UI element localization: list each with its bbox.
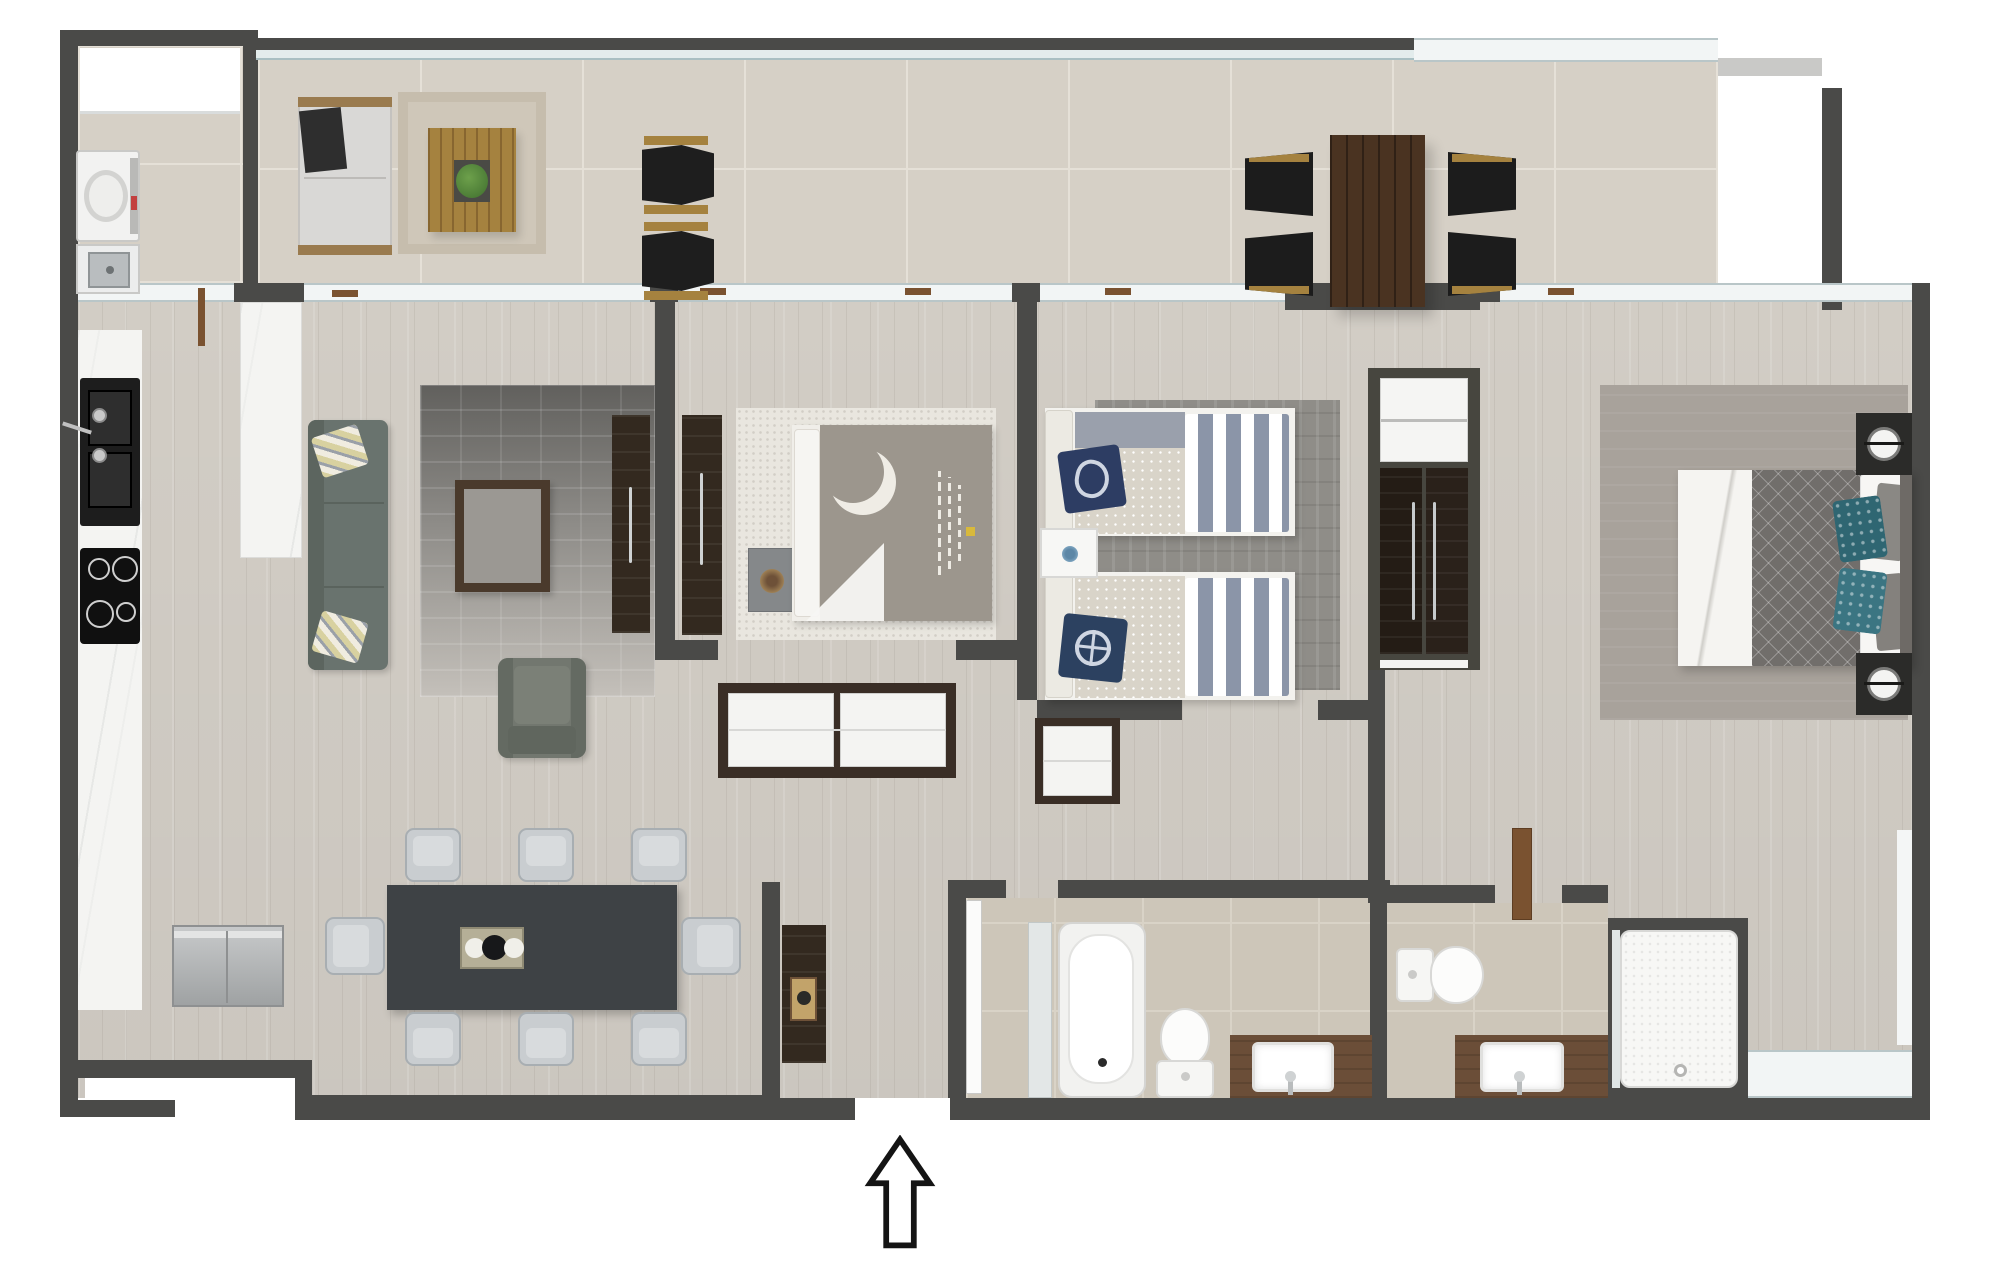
door-frame-mark-3 (905, 288, 931, 295)
door-frame-mark-5 (1548, 288, 1574, 295)
twin-bed-2-navy-pillow (1058, 613, 1128, 683)
toilet-1-button (1181, 1072, 1190, 1081)
wall-closet-spine (1368, 670, 1385, 903)
outdoor-sofa (298, 103, 392, 249)
closet-shelf-divider (1381, 419, 1467, 422)
door-frame-mark-1 (332, 290, 358, 297)
window-pier-island (234, 283, 304, 302)
outdoor-coffee-table (428, 128, 516, 232)
centerpiece-bowl-3 (504, 938, 524, 958)
master-bed-white-blanket (1678, 470, 1758, 666)
bathroom2-door-leaf (1512, 828, 1532, 920)
refrigerator (172, 925, 284, 1007)
laundry-sink (76, 244, 140, 294)
washer-indicator (131, 196, 137, 210)
bathtub-drain (1098, 1058, 1107, 1067)
bedroom1-dresser (718, 683, 956, 778)
shower-tray (1620, 930, 1738, 1088)
twin-bed-2 (1045, 572, 1295, 700)
shower-drain (1674, 1064, 1687, 1077)
sofa-cushion-line-1 (324, 502, 384, 504)
armchair-seat (514, 666, 570, 724)
wall-entry-bottom-left (762, 1098, 855, 1120)
outdoor-sofa-wood-bottom (298, 245, 392, 255)
dresser-drawer-line (728, 729, 946, 731)
vanity-2 (1455, 1035, 1608, 1098)
dining-chair-8 (681, 917, 741, 975)
burner-1 (88, 558, 110, 580)
tv-cabinet-handle (629, 487, 632, 563)
outdoor-chair-2 (1245, 232, 1313, 296)
twin-bed-2-stripes (1185, 578, 1289, 696)
outdoor-sofa-seat-line (304, 177, 386, 179)
toilet-2-bowl (1430, 946, 1484, 1004)
centerpiece-tray (460, 927, 524, 969)
entry-console-tray (790, 977, 817, 1021)
laundry-door-frame (198, 288, 205, 346)
wall-dining-bottom (295, 1095, 762, 1120)
tv-cabinet (612, 415, 650, 633)
sofa-cushion-line-2 (324, 586, 384, 588)
entry-arrow (862, 1135, 938, 1250)
master-bed (1678, 470, 1912, 666)
laundry-window (80, 48, 240, 114)
toilet-2 (1396, 946, 1484, 1004)
duvet-text-line-1 (938, 471, 941, 575)
master-teal-pillow-1 (1832, 495, 1888, 563)
wall-entry-left (762, 882, 780, 1098)
twin-bed-1-stripes (1185, 414, 1289, 532)
floor-plan-canvas (0, 0, 2016, 1269)
terrace-right-window (1414, 38, 1718, 62)
lounge-chair-1-wood-bottom (644, 205, 708, 214)
wall-bath1-top-b (1058, 880, 1390, 898)
toilet-2-button (1408, 970, 1417, 979)
master-lamp-top-arm (1864, 442, 1904, 445)
hall-cabinet-line (1043, 760, 1112, 762)
burner-3 (86, 600, 114, 628)
refrigerator-handle-strip (174, 931, 282, 938)
dining-chair-7 (325, 917, 385, 975)
wall-laundry-right (243, 46, 258, 302)
entry-console (782, 925, 826, 1063)
master-headboard (1900, 464, 1912, 670)
bedroom1-nightstand-tray (760, 569, 784, 593)
terrace-glass-rail (256, 50, 1414, 60)
master-lamp-bottom-arm (1864, 682, 1904, 685)
kitchen-sink (80, 378, 140, 526)
vanity-2-faucet-base (1514, 1071, 1525, 1082)
wall-bottom-right (950, 1098, 1912, 1120)
hall-cabinet (1035, 718, 1120, 804)
duvet-crown-mark (966, 527, 975, 536)
master-teal-pillow-2 (1832, 567, 1887, 634)
toilet-1-bowl (1160, 1008, 1210, 1066)
bedroom1-nightstand (748, 548, 794, 612)
right-wall-window (1897, 830, 1912, 1045)
wall-bath-divider (1370, 898, 1387, 1100)
bathroom1-door-leaf (966, 900, 982, 1094)
knot-motif (1071, 457, 1112, 501)
wall-kitchen-bottom (78, 1060, 300, 1078)
moon-crescent-inner (822, 441, 884, 503)
armchair-back (508, 726, 576, 754)
bedroom1-moon-duvet (820, 425, 992, 621)
toilet-1 (1156, 1008, 1214, 1100)
wall-bath1-top-a (948, 880, 1006, 898)
outdoor-sofa-wood-top (298, 97, 392, 107)
door-frame-mark-4 (1105, 288, 1131, 295)
lounge-chair-2-body (642, 231, 714, 291)
closet-door-right (1426, 468, 1468, 654)
sofa (308, 420, 388, 670)
bedroom1-pillow (794, 429, 820, 617)
master-nightstand-bottom (1856, 653, 1912, 715)
closet-door-left (1380, 468, 1422, 654)
armchair (498, 658, 586, 758)
closet-shelf-top (1380, 378, 1468, 462)
washing-machine (76, 150, 140, 242)
closet-block (1368, 368, 1480, 670)
vanity-1-faucet-base (1285, 1071, 1296, 1082)
dining-chair-1 (405, 828, 461, 882)
outdoor-chair-1 (1245, 152, 1313, 216)
duvet-text-line-3 (958, 485, 961, 561)
lounge-chair-2-wood-top (644, 222, 708, 231)
closet-door-right-handle (1433, 502, 1436, 620)
vanity-1-sink (1252, 1042, 1334, 1092)
lounge-chair-1-body (642, 145, 714, 205)
twin-nightstand-cup (1062, 546, 1078, 562)
wall-top-right (1822, 88, 1842, 310)
dining-chair-2 (518, 828, 574, 882)
planter-plant (456, 164, 488, 198)
lounge-chair-2 (640, 222, 716, 300)
dining-chair-3 (631, 828, 687, 882)
wall-living-bed1 (655, 302, 675, 660)
closet-door-left-handle (1412, 502, 1415, 620)
dining-table (387, 885, 677, 1010)
duvet-text-line-2 (948, 477, 951, 569)
burner-4 (116, 602, 136, 622)
bathtub (1058, 922, 1146, 1098)
terrace-right-sill (1718, 58, 1822, 76)
bedroom1-bed (792, 425, 992, 621)
vanity-2-sink (1480, 1042, 1564, 1092)
bedroom1-wardrobe (682, 415, 722, 635)
entry-console-decor (797, 991, 811, 1005)
wall-terrace-top (256, 38, 1414, 50)
laundry-sink-drain (106, 266, 114, 274)
dining-chair-4 (405, 1012, 461, 1066)
closet-shelf-bottom (1380, 660, 1468, 668)
shower-glass (1612, 930, 1620, 1088)
twin-nightstand (1040, 528, 1098, 578)
lounge-chair-2-wood-bottom (644, 291, 708, 300)
coffee-table (455, 480, 550, 592)
wall-laundry-top (60, 30, 258, 46)
outdoor-sofa-dark-cushion (299, 107, 347, 173)
refrigerator-door-divider (226, 931, 228, 1003)
outdoor-chair-4 (1448, 232, 1516, 296)
wall-bath2-top-b (1562, 885, 1608, 903)
wall-bed1-bottom-a (655, 640, 718, 660)
wall-bath1-left (948, 880, 966, 1098)
washer-drum (84, 170, 128, 222)
dining-chair-5 (518, 1012, 574, 1066)
twin-bed-1-grey-fold (1075, 412, 1185, 448)
outdoor-chair-3 (1448, 152, 1516, 216)
shower-enclosure (1608, 918, 1748, 1100)
outdoor-dining-table (1330, 135, 1425, 307)
dining-chair-6 (631, 1012, 687, 1066)
bathroom1-glass-screen (1028, 922, 1052, 1098)
wall-right-outer (1912, 283, 1930, 1120)
cooktop (80, 548, 140, 644)
wall-twin-bottom-a (1037, 700, 1182, 720)
burner-2 (112, 556, 138, 582)
bedroom1-wardrobe-handle (700, 473, 703, 565)
lounge-chair-1 (640, 136, 716, 214)
twin-bed-1 (1045, 408, 1295, 536)
kitchen-island (240, 302, 302, 558)
exterior-recess (85, 1078, 295, 1205)
wall-recess-stub (78, 1100, 175, 1117)
lounge-chair-1-wood-top (644, 136, 708, 145)
vanity-1 (1230, 1035, 1372, 1098)
kitchen-faucet-knob-2 (92, 448, 107, 463)
twin-bed-1-navy-pillow (1057, 444, 1127, 514)
kitchen-faucet-knob-1 (92, 408, 107, 423)
master-nightstand-top (1856, 413, 1912, 475)
wall-bed1-bottom-b (956, 640, 1037, 660)
wall-bath2-top-a (1385, 885, 1495, 903)
window-pier-2 (1012, 283, 1040, 302)
